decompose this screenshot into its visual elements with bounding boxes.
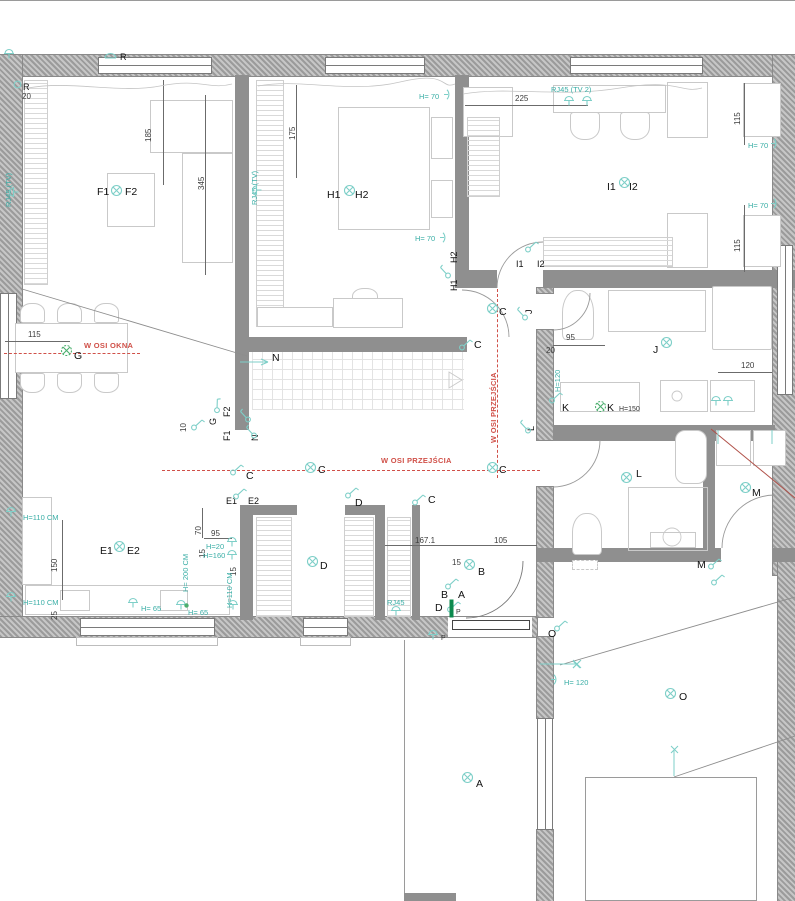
light-icon [461,771,474,784]
chair [94,303,119,323]
switch-icon [411,491,427,506]
plan-label: C [318,464,326,476]
chair [94,373,119,393]
nightstand-i-1 [743,83,781,137]
xmark-icon [670,745,679,754]
plan-label: 70 [194,526,203,535]
switch-icon [232,485,248,500]
wall-wardrobe-right [412,505,420,620]
nightstand-i-2 [743,215,781,267]
plan-label: F1 [97,186,109,198]
terrace-wall-stub [404,893,456,901]
plan-label: 185 [144,129,153,142]
table-o [585,777,757,901]
plan-label: H=160 [203,551,225,560]
chair-i-2 [620,112,650,140]
dot-icon [184,603,189,608]
plan-label: J [653,344,658,356]
wall-i-bottom-1 [455,270,497,288]
closet-i-left [467,117,500,197]
plan-label: W OSI PRZEJŚCIA [381,456,452,465]
plan-label: H= 70 [748,201,768,210]
plan-label: I1 [516,259,524,269]
circle-icon [13,80,22,89]
shower-m-1 [716,430,751,466]
window-a [537,718,553,830]
sill-wardrobe [300,637,351,646]
switch-icon [524,238,540,253]
light-icon [660,336,673,349]
plan-label: 120 [741,361,754,370]
plan-label: O [679,691,687,703]
plan-label: RJ45 (TV 2) [551,85,591,94]
shelf-i [543,237,673,267]
light-icon [486,461,499,474]
bathtub-j [608,290,706,332]
plan-label: H= 120 [564,678,588,687]
furniture-f-3 [107,173,155,227]
plan-label: W OSI PRZEJŚCIA [489,372,498,443]
plan-label: 115 [733,112,742,125]
light-icon [113,540,126,553]
window-j [777,245,793,395]
lightg-icon [60,344,73,357]
plan-label: D [320,560,328,572]
plan-label: G [74,350,82,362]
plan-label: 10 [179,423,188,432]
plan-label: C [474,339,482,351]
socket-icon [563,95,575,107]
dim-line [553,345,605,346]
switch-icon [190,416,206,431]
closet-h [256,80,284,327]
closet-f [24,80,48,285]
plan-label: H=20 [206,542,224,551]
plan-label: M [752,487,761,499]
wall-wardrobe-top-1 [253,505,297,515]
plan-label: C [428,494,436,506]
plan-label: H= 200 CM [181,554,190,592]
plan-label: R [120,52,127,62]
plan-label: H2 [449,251,459,263]
plan-label: 20 [22,92,31,101]
plan-label: 175 [288,127,297,140]
socket-icon [390,605,402,617]
bracket-icon [444,89,455,100]
axis-w-osi-przejscia-h [162,470,540,471]
socket-icon [251,184,263,196]
socket-icon [5,591,17,603]
dim-line [744,205,745,272]
plan-label: I2 [537,259,545,269]
blind-icon [104,52,117,60]
floor-plan: F1F2H1H2I1I2GNCCCCCCDDE1E2E1E2BBADPPJKKH… [0,0,795,901]
switch-icon [344,484,360,499]
chair [20,303,45,323]
plan-label: H=150 [619,406,640,413]
plan-label: 105 [494,536,507,545]
cabinet-h [257,307,333,327]
wall-lm-bottom-2 [772,548,795,562]
bar-icon [449,599,454,618]
switch-icon [243,424,258,440]
plan-label: F2 [125,186,137,198]
washer-j [712,286,772,350]
window-wardrobe [303,618,348,636]
light-icon [618,176,631,189]
switch-icon [517,419,532,435]
dim-line [385,545,537,546]
switch-icon [444,575,460,590]
chair [57,303,82,323]
plan-label: 115 [28,330,41,339]
plan-label: N [272,352,280,364]
chair-i-1 [570,112,600,140]
plan-label: 25 [50,611,59,620]
light-icon [486,302,499,315]
dim-line [62,520,63,600]
socket-icon [227,599,239,611]
dim-line [744,83,745,145]
switch-icon [553,617,569,632]
plan-label: R [23,82,30,92]
light-icon [304,461,317,474]
dim-line [718,372,772,373]
switch-icon [237,408,252,424]
plan-label: C [499,306,507,318]
switch-icon [548,389,564,404]
plan-label: K [607,402,614,414]
plan-label: 95 [211,529,220,538]
plan-label: G [208,418,218,425]
plan-label: H=110 CM [23,513,59,522]
plan-label: D [435,602,443,614]
desk-h [333,298,403,328]
plan-label: 115 [733,239,742,252]
plan-label: H=110 CM [23,598,59,607]
plan-label: I1 [607,181,616,193]
switch-icon [710,571,726,586]
corridor-tiles [252,352,464,410]
furniture-f-2 [182,153,233,263]
plan-label: H= 70 [419,92,439,101]
bracket-icon [551,674,562,685]
plan-label: 345 [197,177,206,190]
plan-label: H1 [449,279,459,291]
socket-icon [722,395,734,407]
wall-a-right-2 [537,830,553,901]
toilet-l [572,513,602,555]
light-icon [463,558,476,571]
bracket-icon [440,232,451,243]
lightg-icon [594,400,607,413]
dim-line [163,80,164,185]
shelves-d-left [256,517,292,617]
window-kitchen [80,618,215,636]
plan-label: 225 [515,94,528,103]
socket-icon [3,48,15,60]
socket-icon [226,549,238,561]
plan-label: P [441,635,446,642]
wall-right-lower [778,557,795,901]
kitchen-counter-left [22,497,52,585]
plan-label: L [636,468,642,480]
wall-f-h [235,75,249,395]
plan-label: W OSI OKNA [84,341,133,350]
switch-icon [514,306,529,322]
plan-label: 167.1 [415,536,435,545]
plan-label: H= 70 [748,141,768,150]
plan-label: 15 [452,558,461,567]
plan-label: A [476,778,483,790]
plan-label: B [478,566,485,578]
light-icon [343,184,356,197]
light-icon [664,687,677,700]
plan-label: E1 [100,545,113,557]
socket-icon [581,95,593,107]
bed-h [338,107,430,230]
bed-i-1 [667,82,708,138]
light-icon [110,184,123,197]
switch-icon [707,555,723,570]
plan-label: 95 [566,333,575,342]
socket-icon [427,629,439,641]
terrace-wall-left [404,640,405,901]
plan-label: H= 65 [141,604,161,613]
chair [20,373,45,393]
pillow-h-1 [431,117,453,159]
dim-line [5,341,70,342]
socket-icon [5,506,17,518]
light-icon [620,471,633,484]
roof-edge-line [0,0,795,1]
plan-label: M [697,559,706,571]
socket-icon [127,597,139,609]
sink-l [650,532,696,548]
plan-label: H= 65 [188,608,208,617]
socket-icon [710,395,722,407]
wall-wardrobe-mid [375,505,385,620]
sink-j-1 [660,380,708,412]
wall-corridor-top [248,337,467,352]
entrance-door-leaf [452,620,530,630]
light-icon [739,481,752,494]
kitchen-sink [60,590,90,611]
switch-icon [437,264,452,280]
tub-l [675,430,707,484]
shelves-d-right [344,517,374,617]
plan-label: H1 [327,189,340,201]
wall-corridor-right-1 [537,288,553,293]
box-l [572,560,598,570]
shower-m-2 [753,430,786,466]
plan-label: C [246,470,254,482]
bracket-icon [771,138,782,149]
plan-label: 20 [546,346,555,355]
wall-wardrobe-left [240,505,253,620]
switch-icon [458,336,474,351]
xmark-icon [572,660,581,669]
light-icon [306,555,319,568]
plan-label: E2 [127,545,140,557]
sill-kitchen [76,637,218,646]
socket-icon [8,186,20,198]
plan-label: 150 [50,559,59,572]
plan-label: H2 [355,189,368,201]
plan-label: H= 70 [415,234,435,243]
pillow-h-2 [431,180,453,218]
window-i [570,57,703,74]
bed-i-2 [667,213,708,268]
plan-label: C [499,464,507,476]
plan-label: E2 [248,496,259,506]
bracket-icon [771,198,782,209]
socket-icon [226,536,238,548]
chair [57,373,82,393]
window-h [325,57,425,74]
plan-label: F1 [222,430,232,441]
switch-icon [229,461,245,476]
